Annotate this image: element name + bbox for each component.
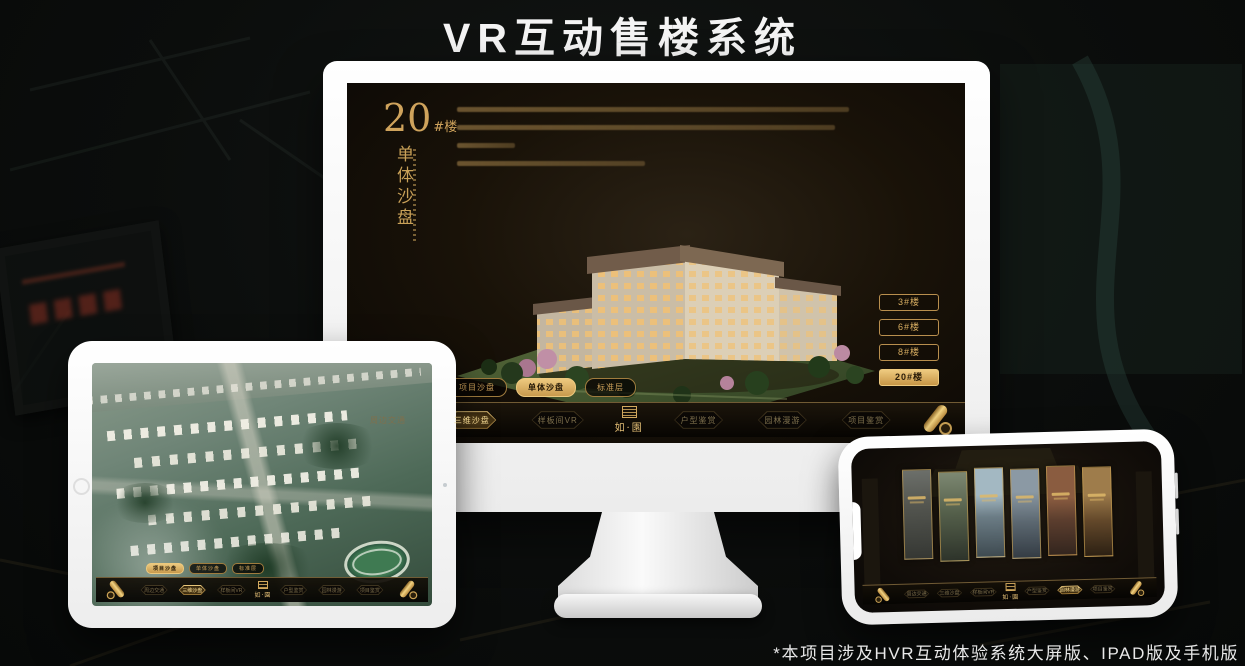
tablet-subtab-project-sandtable[interactable]: 项目沙盘: [146, 563, 184, 574]
tablet-subtab-standard-floor[interactable]: 标准层: [232, 563, 264, 574]
tree-cluster-decoration: [292, 423, 382, 469]
phone-nav-item-3d-sandtable[interactable]: 三维沙盘: [934, 588, 964, 598]
seal-icon: [1005, 582, 1015, 590]
column-silhouette-decoration: [862, 478, 881, 588]
subtab-standard-floor[interactable]: 标准层: [585, 378, 636, 397]
phone-nav-item-traffic[interactable]: 周边交通: [901, 589, 931, 599]
tablet-subtab-single-sandtable[interactable]: 单体沙盘: [189, 563, 227, 574]
subtab-single-sandtable[interactable]: 单体沙盘: [516, 378, 576, 397]
tablet-nav-item-traffic[interactable]: 周边交通: [138, 585, 170, 596]
poster-title: VR互动售楼系统: [0, 4, 1245, 64]
phone-bottom-navbar: 周边交通 三维沙盘 样板间VR 如·園 户型鉴赏 园林漫游 项目鉴赏: [862, 577, 1156, 605]
tablet-brand-logo: 如·園: [254, 581, 271, 599]
tablet-screen: 项目沙盘 单体沙盘 标准层 周边交通 三维沙盘 样板间VR 如·園 户型鉴赏 园…: [92, 363, 432, 606]
poster-canvas: VR互动售楼系统 20#楼 单体沙盘: [0, 0, 1245, 666]
tablet-scroll-right-icon[interactable]: [398, 581, 418, 600]
panorama-card-gallery: [902, 464, 1113, 559]
nav-item-showroom-vr[interactable]: 样板间VR: [527, 411, 589, 430]
scroll-menu-icon[interactable]: [921, 405, 953, 435]
phone-device: 周边交通 三维沙盘 样板间VR 如·園 户型鉴赏 园林漫游 项目鉴赏: [838, 429, 1179, 626]
tablet-nav-item-unit-appreciation[interactable]: 户型鉴赏: [278, 585, 310, 596]
tablet-subtab-group: 项目沙盘 单体沙盘 标准层: [146, 563, 264, 574]
monitor-subtab-group: 项目沙盘 单体沙盘 标准层: [447, 378, 636, 397]
column-silhouette-decoration: [1136, 471, 1155, 581]
gallery-card-3[interactable]: [974, 467, 1005, 558]
nav-item-project-appreciation[interactable]: 项目鉴赏: [837, 411, 895, 430]
tablet-nav-item-garden-roam[interactable]: 园林漫游: [316, 585, 348, 596]
footnote-text: *本项目涉及HVR互动体验系统大屏版、IPAD版及手机版: [773, 639, 1239, 664]
tablet-bottom-navbar: 周边交通 三维沙盘 样板间VR 如·園 户型鉴赏 园林漫游 项目鉴赏: [96, 577, 428, 602]
gallery-card-5[interactable]: [1046, 465, 1077, 556]
phone-nav-item-showroom-vr[interactable]: 样板间VR: [967, 587, 999, 597]
phone-nav-item-garden-roam[interactable]: 园林漫游: [1055, 585, 1085, 595]
phone-screen: 周边交通 三维沙盘 样板间VR 如·園 户型鉴赏 园林漫游 项目鉴赏: [851, 441, 1165, 613]
phone-notch: [851, 502, 862, 560]
floor-number: 20: [383, 96, 431, 140]
floor-button-6[interactable]: 6#楼: [879, 319, 939, 336]
tablet-nav-item-showroom-vr[interactable]: 样板间VR: [214, 585, 248, 596]
gallery-card-6[interactable]: [1082, 466, 1113, 557]
phone-nav-item-unit-appreciation[interactable]: 户型鉴赏: [1022, 586, 1052, 596]
seal-icon: [622, 406, 637, 418]
tablet-nav-item-3d-sandtable[interactable]: 三维沙盘: [176, 585, 208, 596]
floor-button-group: 3#楼 6#楼 8#楼 20#楼: [879, 294, 939, 386]
gallery-card-4[interactable]: [1010, 468, 1041, 559]
floor-button-3[interactable]: 3#楼: [879, 294, 939, 311]
nav-item-unit-appreciation[interactable]: 户型鉴赏: [670, 411, 728, 430]
tablet-nav-item-project-appreciation[interactable]: 项目鉴赏: [354, 585, 386, 596]
tablet-scroll-left-icon[interactable]: [106, 581, 126, 600]
vertical-caption-decoration: [413, 149, 416, 241]
gallery-card-2[interactable]: [938, 471, 969, 562]
seal-icon: [258, 581, 268, 589]
floor-heading: 20#楼: [383, 99, 457, 137]
phone-brand-logo: 如·園: [1002, 582, 1019, 600]
floor-button-8[interactable]: 8#楼: [879, 344, 939, 361]
monitor-stand-base: [554, 594, 762, 618]
nav-item-garden-roam[interactable]: 园林漫游: [753, 411, 811, 430]
floor-button-20[interactable]: 20#楼: [879, 369, 939, 386]
gallery-card-1[interactable]: [902, 469, 933, 560]
subtab-project-sandtable[interactable]: 项目沙盘: [447, 378, 507, 397]
phone-nav-item-project-appreciation[interactable]: 项目鉴赏: [1088, 584, 1118, 594]
tablet-home-button[interactable]: [73, 478, 90, 495]
phone-side-button[interactable]: [1176, 509, 1180, 535]
brand-logo: 如·園: [615, 406, 644, 434]
phone-side-button[interactable]: [1175, 473, 1179, 499]
floor-suffix: #楼: [433, 120, 457, 135]
phone-scroll-right-icon[interactable]: [1128, 580, 1144, 595]
tablet-camera-icon: [443, 483, 447, 487]
phone-scroll-left-icon[interactable]: [875, 587, 891, 602]
tablet-device: 项目沙盘 单体沙盘 标准层 周边交通 三维沙盘 样板间VR 如·園 户型鉴赏 园…: [68, 341, 456, 628]
